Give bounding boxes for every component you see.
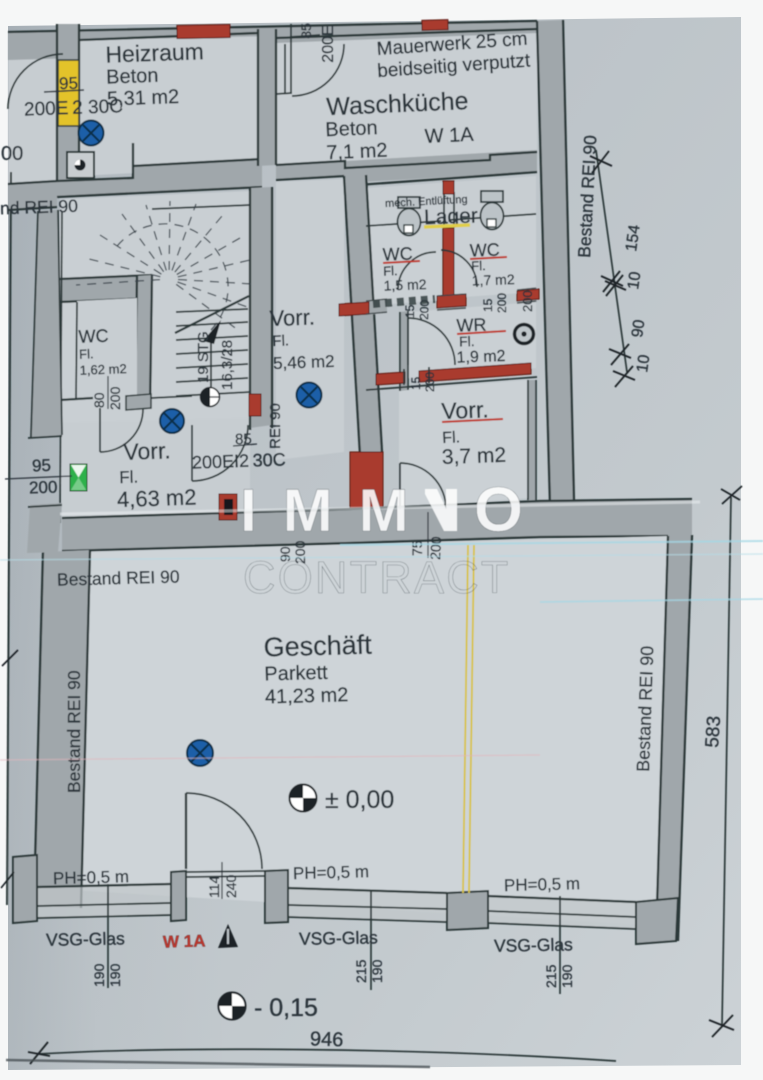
svg-text:Vorr.: Vorr. [123, 437, 171, 465]
svg-text:nd REI 90: nd REI 90 [0, 196, 78, 219]
svg-text:Vorr.: Vorr. [269, 304, 315, 331]
svg-text:1,5 m2: 1,5 m2 [383, 276, 427, 293]
svg-text:85: 85 [298, 23, 314, 39]
svg-text:O: O [474, 475, 523, 545]
svg-text:190: 190 [369, 959, 385, 983]
svg-text:CONTRACT: CONTRACT [243, 552, 511, 603]
svg-text:10: 10 [625, 270, 644, 290]
svg-text:583: 583 [702, 715, 725, 748]
svg-text:Geschäft: Geschäft [263, 630, 372, 663]
svg-text:190: 190 [91, 963, 107, 987]
svg-text:5,46 m2: 5,46 m2 [273, 352, 335, 373]
svg-text:16,3/28: 16,3/28 [219, 340, 236, 390]
svg-text:Bestand REI 90: Bestand REI 90 [57, 566, 180, 589]
svg-text:1,62 m2: 1,62 m2 [79, 361, 126, 378]
svg-text:10: 10 [634, 353, 653, 373]
svg-text:19 STG: 19 STG [195, 331, 212, 383]
svg-text:Beton: Beton [325, 117, 378, 141]
svg-text:00: 00 [1, 143, 23, 165]
svg-text:200: 200 [29, 478, 58, 498]
svg-text:200EI2 30C: 200EI2 30C [192, 449, 286, 472]
svg-text:REI 90: REI 90 [267, 403, 284, 449]
svg-text:95: 95 [32, 456, 52, 476]
svg-text:200: 200 [423, 372, 437, 392]
svg-text:PH=0,5 m: PH=0,5 m [504, 874, 581, 895]
svg-text:Fl.: Fl. [119, 467, 139, 487]
svg-text:240: 240 [223, 874, 239, 898]
svg-text:946: 946 [310, 1028, 344, 1051]
svg-text:Fl.: Fl. [79, 346, 94, 361]
svg-text:WC: WC [78, 326, 109, 347]
svg-text:215: 215 [353, 959, 369, 983]
svg-text:200E: 200E [320, 25, 337, 62]
svg-text:15: 15 [403, 304, 417, 318]
svg-text:90: 90 [629, 318, 648, 338]
svg-text:190: 190 [559, 964, 575, 988]
svg-text:Parkett: Parkett [264, 662, 328, 686]
svg-text:VSG-Glas: VSG-Glas [494, 934, 573, 955]
svg-text:VSG-Glas: VSG-Glas [46, 928, 125, 949]
svg-text:PH=0,5 m: PH=0,5 m [53, 867, 130, 888]
svg-text:Heizraum: Heizraum [105, 38, 204, 67]
svg-text:4,63 m2: 4,63 m2 [117, 484, 197, 512]
svg-text:W 1A: W 1A [424, 124, 474, 148]
svg-text:15: 15 [409, 376, 423, 390]
svg-text:41,23 m2: 41,23 m2 [265, 684, 349, 708]
svg-text:7,1 m2: 7,1 m2 [326, 140, 388, 165]
svg-text:1,9 m2: 1,9 m2 [456, 348, 506, 367]
svg-text:200E 2 30C: 200E 2 30C [24, 96, 124, 120]
svg-text:215: 215 [543, 964, 559, 988]
svg-text:200: 200 [520, 290, 535, 312]
svg-text:Beton: Beton [106, 65, 159, 89]
svg-text:Bestand REI 90: Bestand REI 90 [64, 670, 84, 793]
svg-text:- 0,15: - 0,15 [254, 994, 318, 1022]
svg-text:3,7 m2: 3,7 m2 [442, 444, 507, 469]
svg-text:Fl.: Fl. [442, 429, 460, 447]
svg-text:PH=0,5 m: PH=0,5 m [293, 862, 370, 883]
svg-text:Fl.: Fl. [272, 332, 289, 350]
svg-text:± 0,00: ± 0,00 [325, 786, 394, 814]
svg-text:Fl.: Fl. [459, 333, 475, 350]
svg-text:15: 15 [481, 298, 495, 312]
svg-text:1,7 m2: 1,7 m2 [471, 271, 515, 288]
svg-text:VSG-Glas: VSG-Glas [299, 927, 378, 948]
svg-text:80: 80 [91, 392, 107, 408]
svg-text:W 1A: W 1A [163, 931, 206, 951]
svg-text:200: 200 [417, 299, 432, 320]
svg-text:190: 190 [107, 963, 123, 987]
svg-text:114: 114 [206, 875, 222, 898]
svg-text:200: 200 [107, 386, 123, 410]
svg-text:200: 200 [495, 293, 509, 313]
